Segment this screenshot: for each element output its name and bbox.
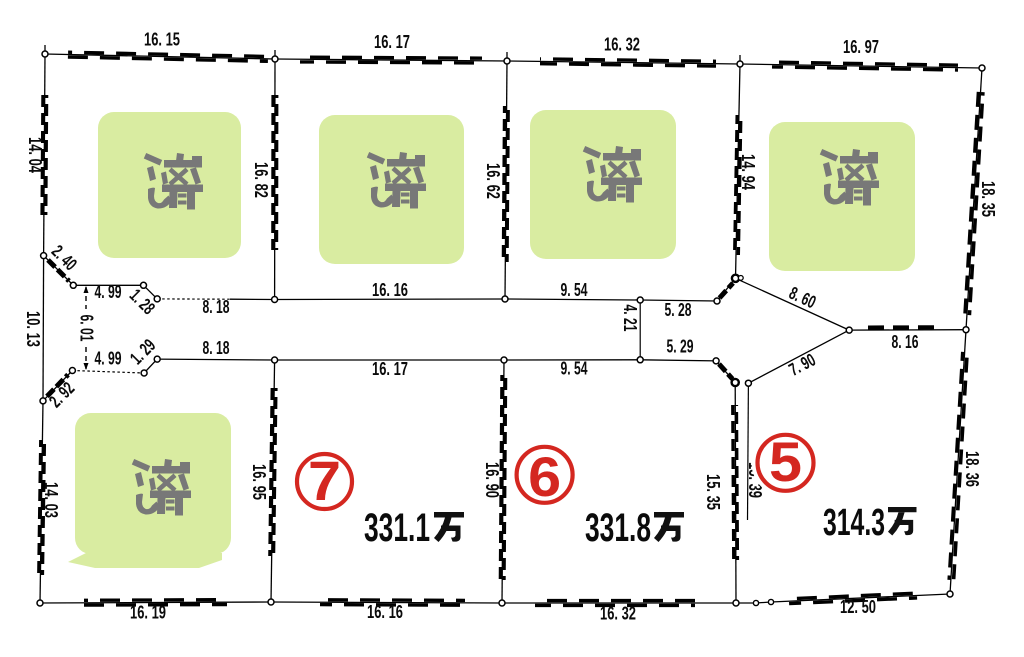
svg-text:4. 99: 4. 99: [95, 349, 122, 369]
svg-text:9. 54: 9. 54: [561, 280, 588, 300]
svg-text:15. 35: 15. 35: [703, 474, 723, 510]
svg-text:5. 28: 5. 28: [665, 300, 692, 320]
svg-text:16. 17: 16. 17: [372, 359, 408, 379]
svg-text:16. 19: 16. 19: [130, 603, 166, 623]
svg-text:7: 7: [308, 449, 341, 512]
svg-text:16. 62: 16. 62: [483, 163, 503, 199]
svg-text:14. 03: 14. 03: [41, 482, 61, 518]
svg-text:16. 16: 16. 16: [367, 602, 403, 622]
svg-text:4. 99: 4. 99: [95, 282, 122, 302]
svg-text:16. 97: 16. 97: [843, 37, 879, 57]
svg-text:8. 16: 8. 16: [892, 332, 919, 352]
svg-text:18. 36: 18. 36: [962, 451, 982, 487]
svg-text:314.3: 314.3: [823, 502, 885, 544]
svg-text:16. 16: 16. 16: [372, 280, 408, 300]
svg-text:16. 90: 16. 90: [482, 462, 502, 498]
svg-text:16. 95: 16. 95: [249, 464, 269, 500]
svg-text:5. 29: 5. 29: [667, 337, 694, 357]
svg-text:16. 32: 16. 32: [604, 35, 640, 55]
svg-text:10. 13: 10. 13: [23, 311, 43, 347]
svg-text:14. 94: 14. 94: [738, 154, 758, 190]
svg-text:18. 35: 18. 35: [978, 181, 998, 217]
svg-text:16. 82: 16. 82: [251, 162, 271, 198]
svg-text:331.8: 331.8: [585, 506, 651, 550]
svg-text:6: 6: [528, 445, 561, 508]
svg-text:16. 15: 16. 15: [144, 30, 180, 50]
svg-text:5: 5: [769, 430, 802, 493]
svg-text:12. 50: 12. 50: [840, 597, 876, 617]
svg-text:8. 18: 8. 18: [203, 338, 230, 358]
svg-text:331.1: 331.1: [364, 506, 430, 550]
svg-text:16. 17: 16. 17: [374, 32, 410, 52]
svg-text:9. 54: 9. 54: [561, 359, 588, 379]
svg-text:14. 04: 14. 04: [25, 137, 45, 173]
svg-text:6. 01: 6. 01: [77, 315, 97, 342]
svg-text:16. 32: 16. 32: [600, 604, 636, 624]
svg-text:8. 18: 8. 18: [203, 297, 230, 317]
svg-text:4. 21: 4. 21: [620, 305, 640, 332]
